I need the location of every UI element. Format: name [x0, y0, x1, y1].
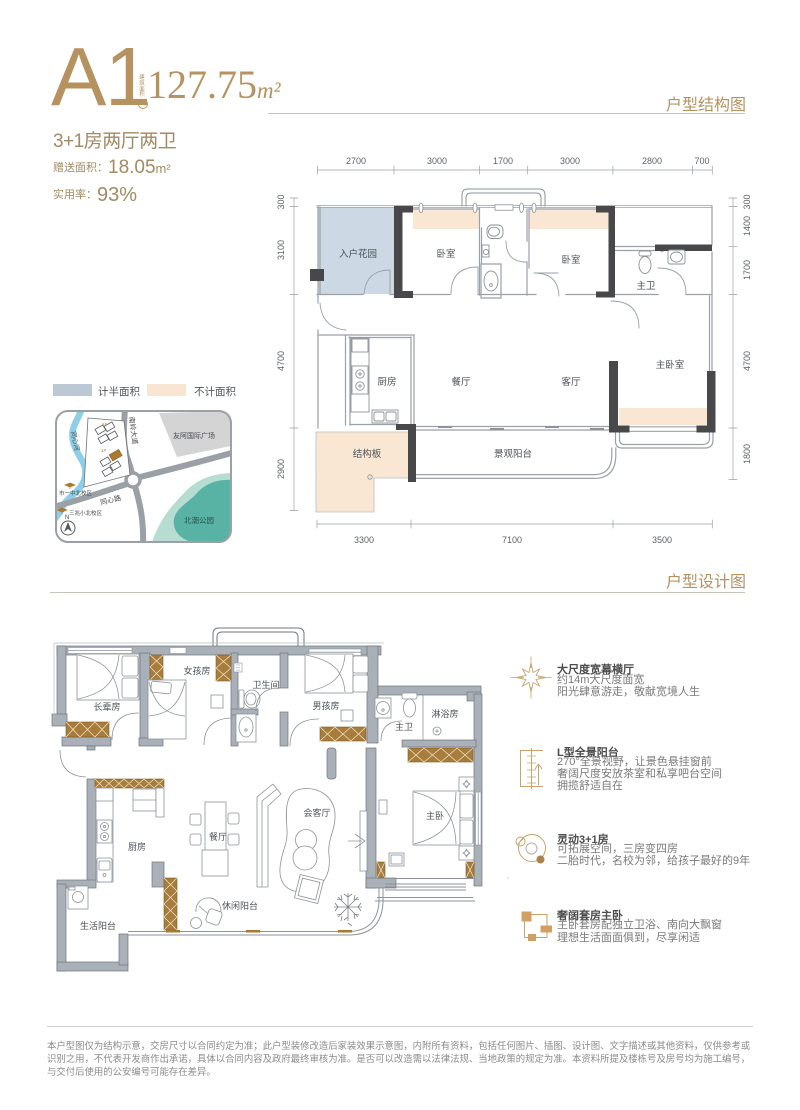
- svg-text:男孩房: 男孩房: [312, 700, 339, 711]
- svg-text:2800: 2800: [642, 156, 662, 166]
- svg-text:女孩房: 女孩房: [183, 665, 210, 676]
- svg-text:北潮公园: 北潮公园: [184, 515, 214, 525]
- svg-text:2700: 2700: [346, 156, 366, 166]
- svg-text:主卫: 主卫: [636, 280, 656, 292]
- svg-text:市一中北校区: 市一中北校区: [59, 489, 93, 497]
- svg-text:3000: 3000: [427, 156, 447, 166]
- svg-text:300: 300: [742, 194, 752, 209]
- svg-text:友阿国际广场: 友阿国际广场: [173, 431, 215, 440]
- svg-text:厨房: 厨房: [377, 376, 396, 388]
- svg-text:300: 300: [276, 194, 286, 209]
- svg-text:2#: 2#: [102, 422, 108, 427]
- svg-text:1#: 1#: [101, 448, 107, 453]
- svg-text:入户花园: 入户花园: [339, 248, 377, 260]
- svg-text:N: N: [65, 515, 69, 521]
- svg-text:餐厅: 餐厅: [451, 376, 471, 388]
- svg-text:3300: 3300: [354, 535, 374, 545]
- svg-text:餐厅: 餐厅: [209, 831, 227, 842]
- svg-text:会客厅: 会客厅: [303, 807, 330, 818]
- svg-text:主卧室: 主卧室: [656, 359, 685, 371]
- svg-text:结构板: 结构板: [353, 448, 382, 460]
- svg-text:休闲阳台: 休闲阳台: [222, 900, 258, 911]
- svg-text:7100: 7100: [502, 535, 522, 545]
- svg-text:3000: 3000: [560, 156, 580, 166]
- svg-text:4700: 4700: [276, 351, 286, 371]
- svg-text:卧室: 卧室: [436, 248, 455, 260]
- svg-text:客厅: 客厅: [561, 376, 581, 388]
- svg-text:3100: 3100: [276, 240, 286, 260]
- svg-text:三兆小北校区: 三兆小北校区: [69, 509, 103, 517]
- svg-text:卧室: 卧室: [561, 254, 580, 266]
- svg-text:1400: 1400: [742, 216, 752, 236]
- svg-text:2900: 2900: [276, 459, 286, 479]
- svg-text:淋浴房: 淋浴房: [431, 708, 458, 719]
- svg-text:卫生间: 卫生间: [252, 679, 279, 690]
- svg-text:1800: 1800: [742, 444, 752, 464]
- svg-text:厨房: 厨房: [128, 841, 146, 852]
- svg-text:1700: 1700: [493, 156, 513, 166]
- svg-text:长辈房: 长辈房: [93, 701, 120, 712]
- svg-text:4700: 4700: [742, 351, 752, 371]
- svg-text:景观阳台: 景观阳台: [494, 448, 532, 460]
- svg-text:主卧: 主卧: [426, 810, 444, 821]
- svg-text:700: 700: [694, 156, 709, 166]
- svg-text:生活阳台: 生活阳台: [80, 920, 116, 931]
- svg-text:1700: 1700: [742, 260, 752, 280]
- svg-text:主卫: 主卫: [395, 721, 413, 732]
- svg-text:3500: 3500: [652, 535, 672, 545]
